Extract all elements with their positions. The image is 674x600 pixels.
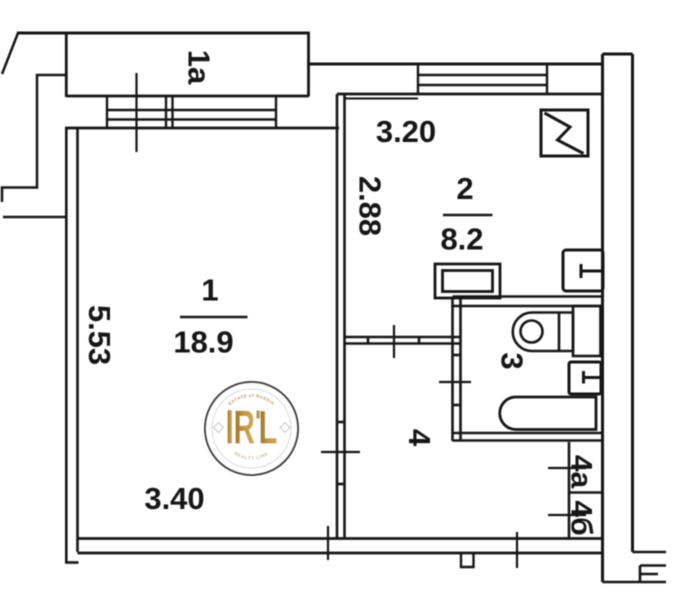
svg-text:4: 4 — [402, 429, 437, 447]
svg-text:3.20: 3.20 — [376, 114, 436, 149]
svg-text:1a: 1a — [182, 50, 217, 85]
svg-text:R: R — [234, 401, 256, 454]
svg-text:18.9: 18.9 — [173, 325, 233, 360]
svg-text:4б: 4б — [565, 500, 598, 535]
svg-text:4a: 4a — [565, 455, 598, 489]
svg-text:2: 2 — [456, 171, 473, 206]
svg-text:L: L — [259, 401, 278, 454]
svg-text:2.88: 2.88 — [353, 176, 388, 236]
svg-text:8.2: 8.2 — [440, 222, 483, 257]
svg-text:5.53: 5.53 — [82, 305, 117, 365]
svg-text:1: 1 — [201, 273, 218, 308]
svg-text:3: 3 — [495, 352, 530, 369]
svg-text:3.40: 3.40 — [144, 481, 204, 516]
